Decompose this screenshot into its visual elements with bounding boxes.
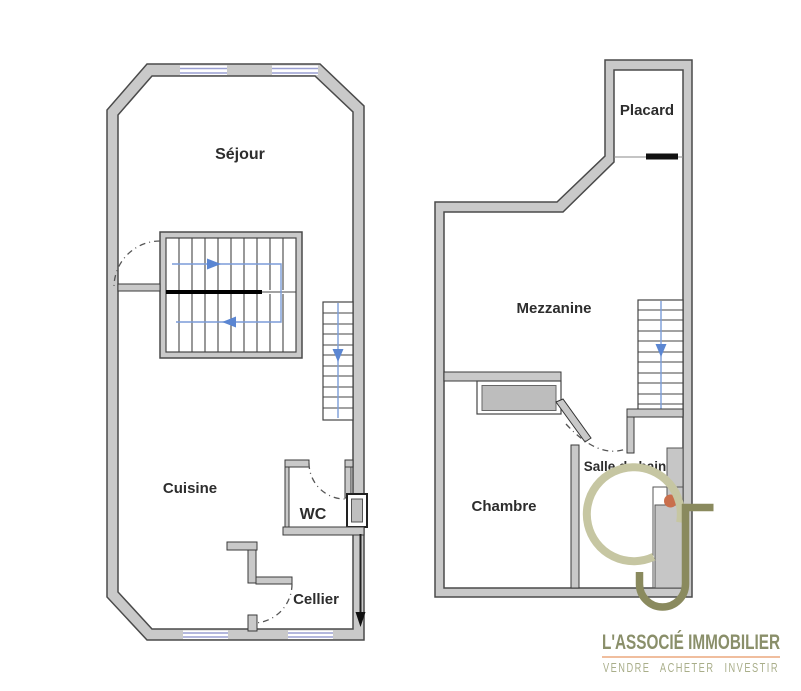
window-top-left [180, 66, 227, 76]
room-label-chambre: Chambre [471, 498, 536, 515]
bathroom-door-leaf [556, 399, 591, 442]
floor-plan-image: Séjour Cuisine WC Cellier [0, 0, 801, 691]
wc-door-arc [309, 463, 345, 499]
placard-door [646, 154, 678, 160]
agency-name: L'ASSOCIÉ IMMOBILIER [602, 629, 780, 654]
room-label-sejour: Séjour [215, 146, 265, 163]
upper-floor-plan: Placard Mezzanine Salle de bain Chambre [435, 60, 692, 597]
room-label-placard: Placard [620, 102, 674, 119]
room-label-cuisine: Cuisine [163, 480, 217, 497]
room-label-cellier: Cellier [293, 591, 339, 608]
cellier-door-arc [253, 584, 292, 623]
upper-staircase [638, 300, 683, 415]
hall-wall-stub [118, 284, 160, 291]
hall-door-arc [114, 241, 160, 287]
room-label-wc: WC [300, 506, 327, 523]
jc-monogram-icon [587, 467, 714, 607]
central-staircase [160, 232, 302, 358]
side-staircase [323, 302, 353, 420]
window-bottom-right [288, 631, 333, 640]
room-label-mezzanine: Mezzanine [516, 300, 591, 317]
cellier-room [227, 542, 292, 631]
ground-floor-plan: Séjour Cuisine WC Cellier [107, 64, 367, 640]
wardrobe-alcove [444, 372, 561, 414]
window-top-right [272, 66, 318, 76]
floor-plan-canvas: Séjour Cuisine WC Cellier [0, 0, 801, 691]
toilet-fixture [352, 499, 363, 522]
window-bottom-left [183, 631, 228, 640]
agency-tagline: VENDRE ACHETER INVESTIR [603, 661, 779, 675]
